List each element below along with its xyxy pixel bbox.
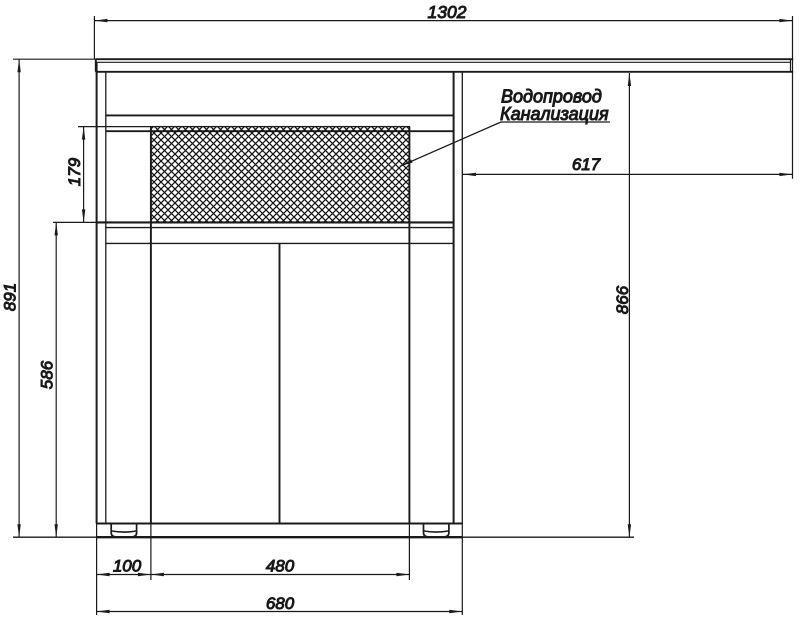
svg-text:891: 891 [1, 283, 20, 311]
svg-text:179: 179 [65, 157, 84, 186]
svg-text:680: 680 [266, 594, 295, 613]
svg-text:586: 586 [38, 360, 57, 389]
svg-text:100: 100 [113, 557, 142, 576]
svg-text:1302: 1302 [428, 2, 467, 22]
svg-text:480: 480 [266, 557, 295, 576]
svg-text:Канализация: Канализация [500, 104, 609, 124]
svg-text:617: 617 [572, 155, 601, 174]
svg-text:866: 866 [613, 285, 632, 314]
